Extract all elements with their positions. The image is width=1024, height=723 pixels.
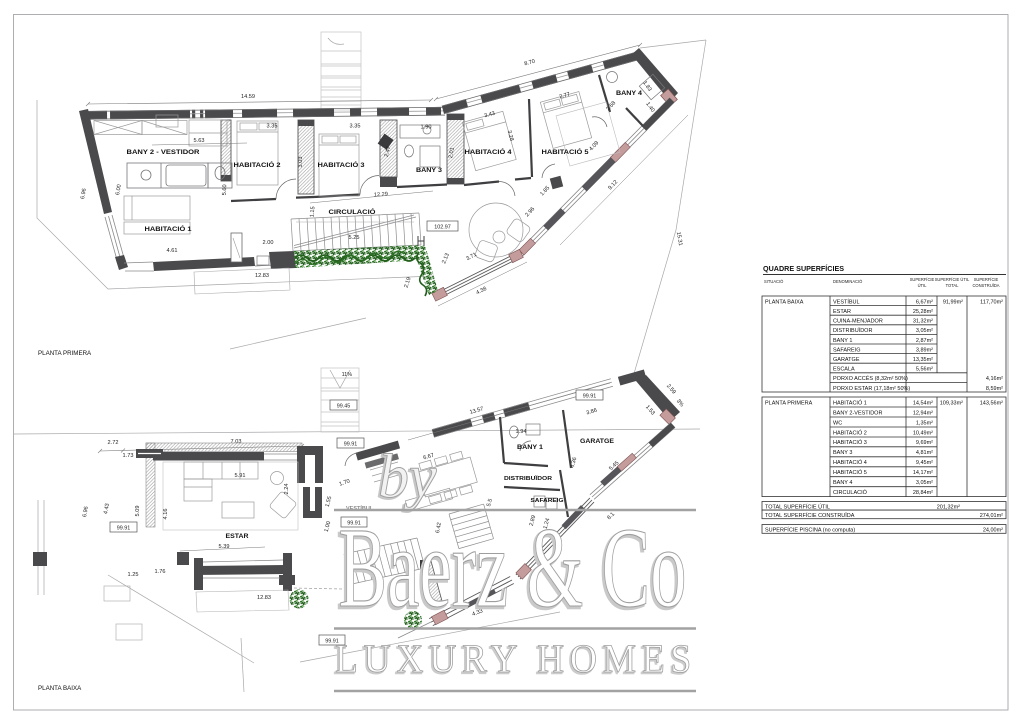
svg-text:14,17m²: 14,17m²	[913, 470, 933, 476]
svg-text:HABITACIÓ 2: HABITACIÓ 2	[234, 160, 282, 169]
svg-text:HABITACIÓ 3: HABITACIÓ 3	[318, 160, 366, 169]
svg-text:99.45: 99.45	[337, 404, 351, 410]
svg-text:8,59m²: 8,59m²	[986, 386, 1003, 392]
svg-text:BANY 1: BANY 1	[517, 444, 544, 451]
svg-text:5.60: 5.60	[222, 184, 229, 195]
svg-text:1.94: 1.94	[516, 429, 527, 435]
svg-text:3,05m²: 3,05m²	[916, 480, 933, 486]
svg-text:9,45m²: 9,45m²	[916, 460, 933, 466]
svg-text:ÚTIL: ÚTIL	[918, 283, 928, 288]
svg-text:4.16: 4.16	[163, 509, 169, 520]
svg-text:109,33m²: 109,33m²	[940, 401, 963, 407]
svg-text:GARATGE: GARATGE	[833, 357, 860, 363]
svg-text:143,56m²: 143,56m²	[980, 401, 1003, 407]
svg-text:SUPERFÍCIE: SUPERFÍCIE	[910, 277, 935, 282]
svg-text:3.03: 3.03	[298, 157, 304, 168]
svg-text:SUPERFÍCIE: SUPERFÍCIE	[974, 277, 999, 282]
svg-text:CIRCULACIÓ: CIRCULACIÓ	[329, 207, 376, 216]
svg-text:TOTAL: TOTAL	[946, 283, 960, 288]
svg-text:DISTRIBUÏDOR: DISTRIBUÏDOR	[504, 475, 552, 482]
svg-text:CIRCULACIÓ: CIRCULACIÓ	[833, 489, 868, 496]
svg-text:PORXO ACCÉS (8,32m² 50%): PORXO ACCÉS (8,32m² 50%)	[833, 375, 908, 382]
svg-text:HABITACIÓ 3: HABITACIÓ 3	[833, 439, 867, 446]
svg-text:DENOMINACIÓ: DENOMINACIÓ	[833, 279, 862, 284]
svg-text:99.91: 99.91	[117, 526, 131, 532]
svg-text:ESTAR: ESTAR	[833, 309, 851, 315]
svg-text:PLANTA BAIXA: PLANTA BAIXA	[38, 685, 82, 692]
svg-text:PLANTA BAIXA: PLANTA BAIXA	[765, 300, 804, 306]
svg-text:SUPERFÍCIE ÚTIL: SUPERFÍCIE ÚTIL	[935, 277, 970, 282]
svg-text:BANY 2-VESTIDOR: BANY 2-VESTIDOR	[833, 410, 882, 416]
svg-text:91,99m²: 91,99m²	[943, 300, 963, 306]
svg-text:4.61: 4.61	[167, 248, 178, 254]
svg-text:1.90: 1.90	[421, 125, 432, 131]
svg-text:HABITACIÓ 4: HABITACIÓ 4	[833, 459, 867, 466]
svg-text:4,81m²: 4,81m²	[916, 450, 933, 456]
svg-text:VESTÍBUL: VESTÍBUL	[833, 299, 860, 306]
svg-text:1.15: 1.15	[310, 206, 317, 217]
svg-text:TOTAL SUPERFÍCIE CONSTRUÏDA: TOTAL SUPERFÍCIE CONSTRUÏDA	[765, 512, 855, 519]
svg-text:HABITACIÓ 2: HABITACIÓ 2	[833, 429, 867, 436]
svg-text:CONSTRUÏDA: CONSTRUÏDA	[972, 283, 999, 288]
svg-text:5.25: 5.25	[349, 235, 360, 241]
svg-text:DISTRIBUÏDOR: DISTRIBUÏDOR	[833, 327, 872, 334]
svg-text:SUPERFÍCIE PISCINA (no computa: SUPERFÍCIE PISCINA (no computa)	[765, 527, 855, 534]
svg-text:3,89m²: 3,89m²	[916, 347, 933, 353]
svg-text:117,70m²: 117,70m²	[980, 300, 1003, 306]
svg-text:HABITACIÓ 5: HABITACIÓ 5	[542, 147, 590, 156]
svg-text:BANY 4: BANY 4	[616, 90, 643, 97]
svg-text:Baerz & Co: Baerz & Co	[339, 504, 687, 631]
svg-text:274,01m²: 274,01m²	[980, 513, 1003, 519]
svg-text:31,32m²: 31,32m²	[913, 319, 933, 325]
svg-text:1.25: 1.25	[128, 572, 139, 578]
svg-text:24,00m²: 24,00m²	[983, 528, 1003, 534]
svg-text:CUINA-MENJADOR: CUINA-MENJADOR	[833, 319, 883, 325]
svg-text:6,67m²: 6,67m²	[916, 300, 933, 306]
svg-text:5.09: 5.09	[135, 506, 141, 517]
svg-text:14.59: 14.59	[241, 94, 255, 100]
svg-text:99.91: 99.91	[583, 394, 597, 400]
svg-text:12,94m²: 12,94m²	[913, 410, 933, 416]
svg-text:28,84m²: 28,84m²	[913, 490, 933, 496]
svg-text:2.24: 2.24	[284, 484, 290, 495]
svg-text:11%: 11%	[342, 372, 353, 378]
svg-text:BANY 1: BANY 1	[833, 338, 852, 344]
svg-text:201,32m²: 201,32m²	[937, 505, 960, 511]
svg-text:25,28m²: 25,28m²	[913, 309, 933, 315]
svg-text:BANY 4: BANY 4	[833, 480, 852, 486]
svg-text:PLANTA PRIMERA: PLANTA PRIMERA	[765, 401, 813, 407]
svg-text:BANY 2 - VESTIDOR: BANY 2 - VESTIDOR	[127, 149, 201, 156]
svg-text:2,87m²: 2,87m²	[916, 338, 933, 344]
svg-text:10,49m²: 10,49m²	[913, 430, 933, 436]
svg-text:3,05m²: 3,05m²	[916, 328, 933, 334]
svg-text:HABITACIÓ 1: HABITACIÓ 1	[145, 224, 193, 233]
svg-text:12.29: 12.29	[374, 192, 388, 199]
svg-text:HABITACIÓ 4: HABITACIÓ 4	[465, 147, 513, 156]
svg-text:12.83: 12.83	[255, 273, 269, 279]
svg-text:WC: WC	[833, 420, 842, 426]
svg-text:HABITACIÓ 1: HABITACIÓ 1	[833, 400, 867, 407]
svg-text:102.97: 102.97	[434, 225, 451, 231]
svg-text:ESCALA: ESCALA	[833, 367, 855, 373]
svg-text:14,54m²: 14,54m²	[913, 401, 933, 407]
svg-text:by: by	[378, 443, 437, 511]
svg-text:4,16m²: 4,16m²	[986, 376, 1003, 382]
svg-text:2.72: 2.72	[108, 440, 119, 446]
svg-text:1.76: 1.76	[155, 569, 166, 575]
svg-text:1.73: 1.73	[123, 453, 134, 459]
svg-text:3.35: 3.35	[267, 124, 278, 130]
svg-text:QUADRE SUPERFÍCIES: QUADRE SUPERFÍCIES	[763, 264, 844, 273]
svg-text:ESTAR: ESTAR	[226, 533, 249, 540]
svg-text:5.91: 5.91	[235, 473, 246, 479]
svg-text:PORXO ESTAR (17,18m² 50%): PORXO ESTAR (17,18m² 50%)	[833, 386, 910, 392]
svg-text:PLANTA PRIMERA: PLANTA PRIMERA	[38, 350, 92, 357]
svg-text:LUXURY HOMES: LUXURY HOMES	[335, 636, 697, 681]
svg-text:GARATGE: GARATGE	[580, 438, 614, 445]
svg-text:9,69m²: 9,69m²	[916, 440, 933, 446]
svg-text:SAFAREIG: SAFAREIG	[833, 347, 861, 353]
svg-text:HABITACIÓ 5: HABITACIÓ 5	[833, 469, 867, 476]
svg-text:BANY 3: BANY 3	[416, 167, 443, 174]
svg-text:1,35m²: 1,35m²	[916, 420, 933, 426]
svg-text:2.00: 2.00	[263, 240, 274, 246]
svg-text:13,35m²: 13,35m²	[913, 357, 933, 363]
svg-text:BANY 3: BANY 3	[833, 450, 852, 456]
svg-text:99.91: 99.91	[344, 442, 358, 448]
svg-text:3.35: 3.35	[350, 124, 361, 130]
svg-text:12.83: 12.83	[257, 595, 271, 601]
svg-text:SITUACIÓ: SITUACIÓ	[764, 279, 783, 284]
svg-text:5.63: 5.63	[194, 138, 205, 144]
svg-text:TOTAL SUPERFÍCIE ÚTIL: TOTAL SUPERFÍCIE ÚTIL	[765, 504, 830, 511]
svg-text:5,56m²: 5,56m²	[916, 367, 933, 373]
